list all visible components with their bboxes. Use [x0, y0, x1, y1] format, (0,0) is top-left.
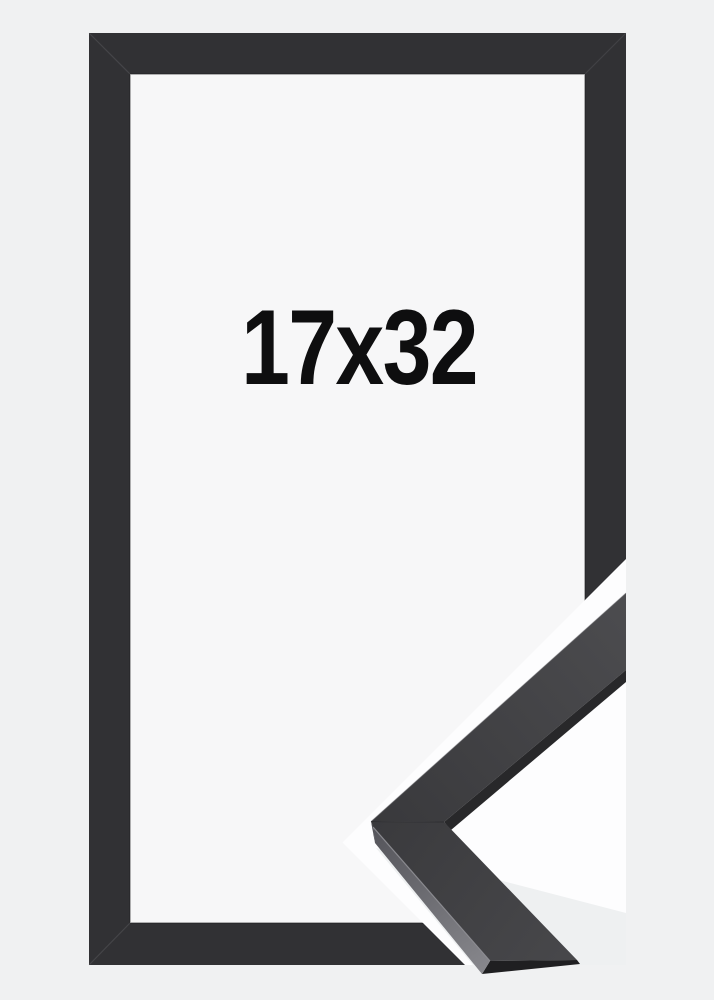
moulding-mitre-seam [371, 822, 444, 823]
product-image: 17x32 [0, 0, 714, 1000]
frame-photo [0, 0, 714, 1000]
size-label: 17x32 [241, 294, 477, 401]
